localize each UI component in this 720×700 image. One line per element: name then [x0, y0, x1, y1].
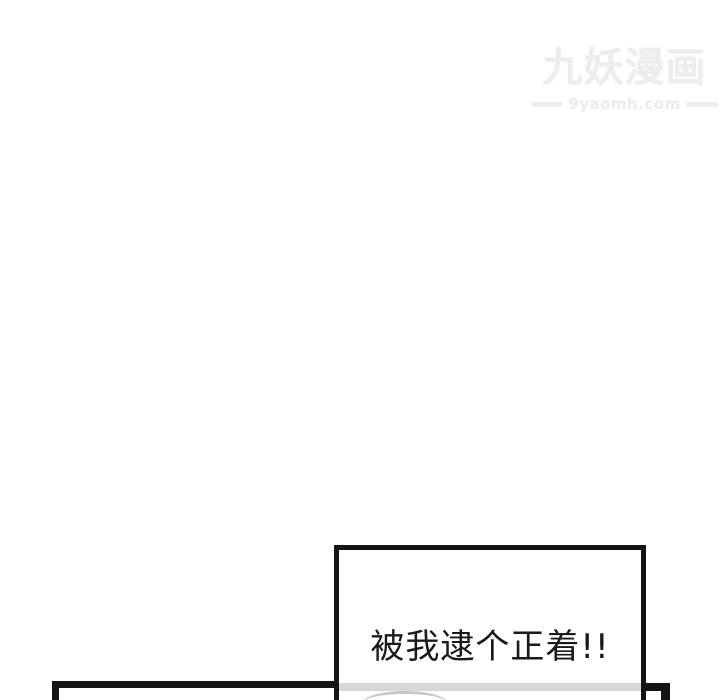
bottom-panel-right-border	[661, 688, 670, 700]
dash-line-right	[686, 102, 718, 107]
comic-page: { "watermark": { "title": "九妖漫画", "url":…	[0, 0, 720, 700]
bottom-panel-left-border	[52, 681, 59, 700]
site-watermark: 九妖漫画 9yaomh.com	[542, 46, 707, 113]
watermark-url-row: 9yaomh.com	[542, 95, 707, 113]
watermark-title: 九妖漫画	[542, 46, 707, 90]
caption-panel	[334, 545, 646, 700]
bottom-panel-top-border-left	[52, 681, 338, 688]
panel-seam-band	[339, 683, 641, 691]
dash-line-left	[531, 102, 563, 107]
caption-text: 被我逮个正着!!	[339, 628, 641, 666]
watermark-url: 9yaomh.com	[568, 95, 680, 113]
